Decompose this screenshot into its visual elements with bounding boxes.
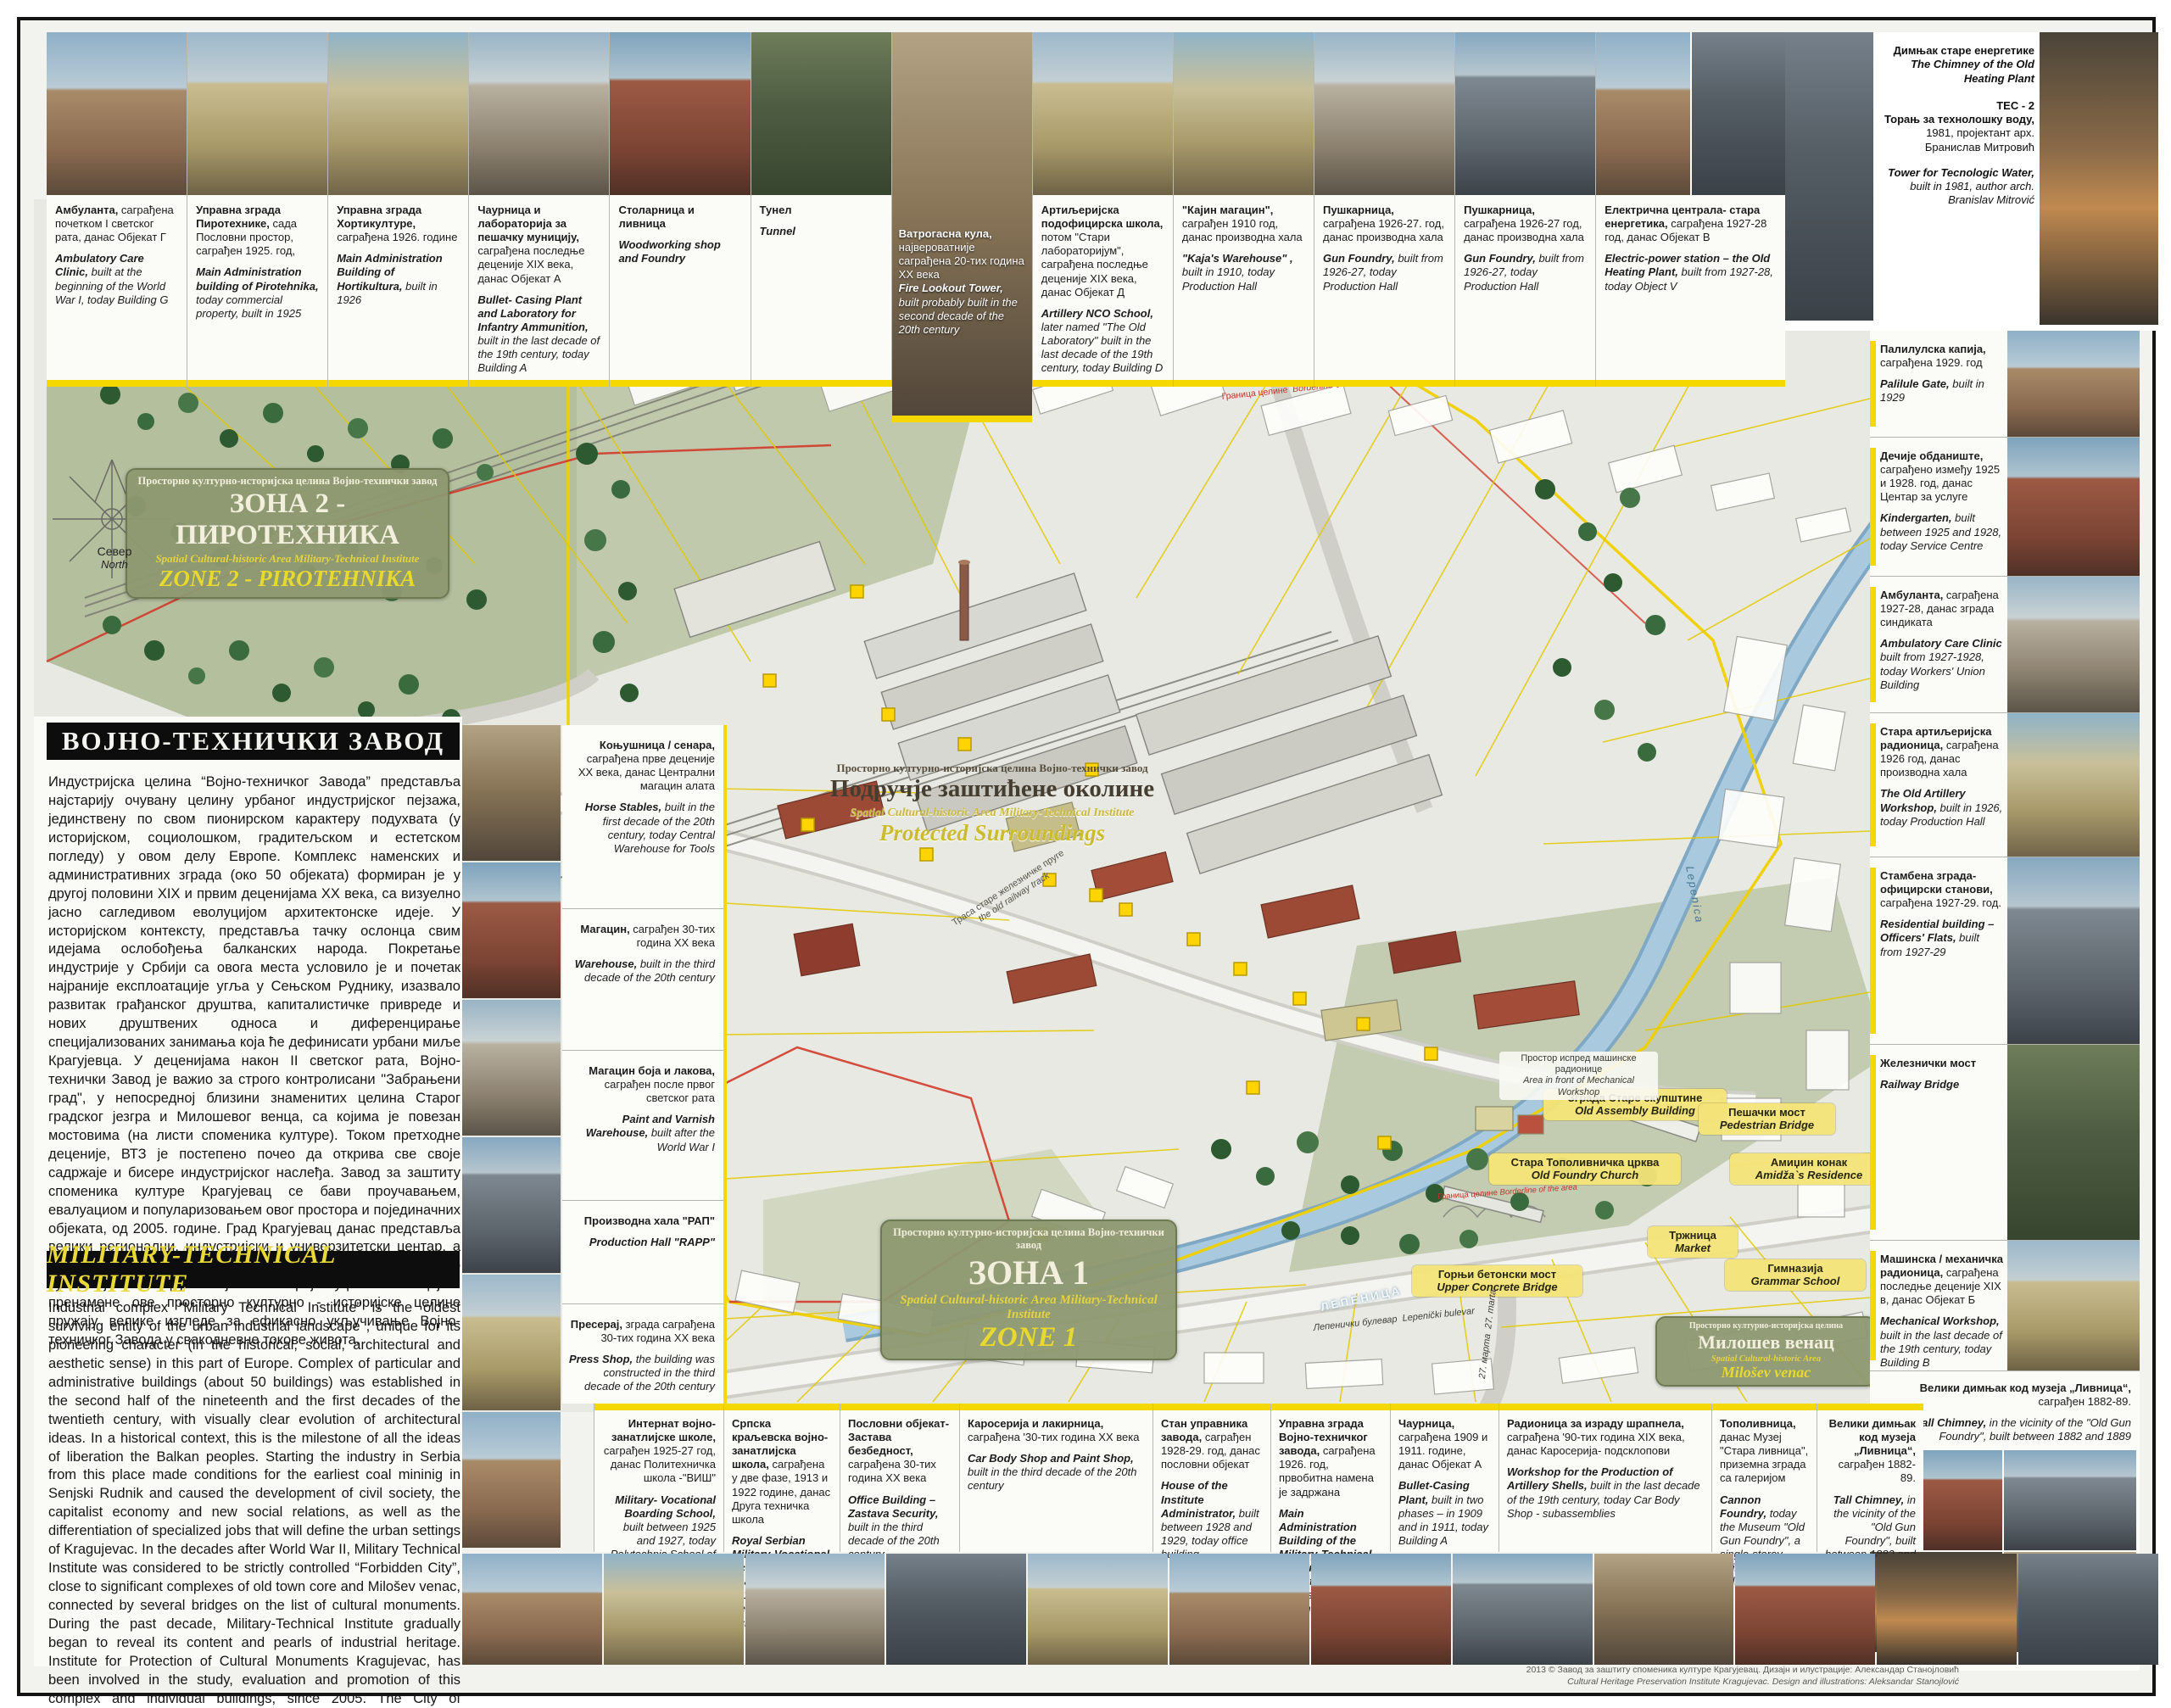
- zone1-title-en: ZONE 1: [889, 1322, 1169, 1354]
- left-photo-strip: [462, 725, 561, 1548]
- intro-paragraph-en: Industrial complex “Military Technical I…: [48, 1299, 460, 1660]
- title-bar-sr: ВОЈНО-ТЕХНИЧКИ ЗАВОД: [47, 723, 460, 760]
- top-photo-caption-strip: Амбуланта, саграђена почетком I светског…: [47, 32, 1785, 387]
- fire-tower-caption: Ватрогасна кула, највероватније саграђен…: [899, 227, 1026, 337]
- yellow-bar: [960, 1404, 1152, 1410]
- bottom-card-boarding-school: Интернат војно-занатлијске школе, саграђ…: [594, 1404, 723, 1552]
- right-card-ambulatory: Амбуланта, саграђена 1927-28, данас згра…: [1870, 576, 2140, 712]
- photo-administrator-house: [1028, 1554, 1168, 1665]
- top-card: Управна зграда Пиротехнике, сада Пословн…: [187, 32, 327, 387]
- top-card: Пушкарница, саграђена 1926-27 год, данас…: [1454, 32, 1595, 387]
- poster: Амбуланта, саграђена почетком I светског…: [0, 0, 2171, 1708]
- bottom-photo-strip: [462, 1554, 2158, 1665]
- photo-palilule-gate: [2007, 331, 2140, 437]
- photo-tall-chimney-2: [1735, 1554, 1875, 1665]
- bottom-card-royal-school: Српска краљевска војно-занатлијска школа…: [723, 1404, 840, 1552]
- photo-ambulatory-clinic: [47, 32, 187, 195]
- photo-second-technical-school: [604, 1554, 744, 1665]
- photo-tunnel: [751, 32, 891, 195]
- photo-horse-stables: [462, 725, 561, 861]
- photo-press-shop: [462, 1275, 561, 1410]
- protected-surroundings-label: Просторно културно-историјска целина Вој…: [806, 762, 1179, 846]
- compass-north-en: North: [59, 558, 170, 571]
- bottom-card-car-body-shop: Каросерија и лакирница, саграђена '30-ти…: [959, 1404, 1152, 1552]
- intro-paragraph-sr: Индустријска целина “Војно-техничког Зав…: [48, 773, 460, 1244]
- photo-museum-machines: [2018, 1554, 2158, 1665]
- left-card-horse-stables: Коњушница / сенара, саграђена прве децен…: [562, 725, 723, 908]
- top-card: Амбуланта, саграђена почетком I светског…: [47, 32, 187, 387]
- zone2-subtitle-sr: Просторно културно-историјска целина Вој…: [134, 475, 441, 488]
- footer-credits: 2013 © Завод за заштиту споменика култур…: [1230, 1665, 1959, 1688]
- photo-gun-foundry-1: [1314, 32, 1454, 195]
- photo-shrapnel-workshop: [1453, 1554, 1593, 1665]
- yellow-bar: [1153, 1404, 1270, 1410]
- bottom-card-main-administration: Управна зграда Војно-техничког завода, с…: [1270, 1404, 1390, 1552]
- yellow-bar: [1870, 1055, 1876, 1230]
- yellow-bar: [1391, 1404, 1498, 1410]
- left-card-rapp-hall: Производна хала "РАП" Production Hall "R…: [562, 1200, 723, 1303]
- zone2-title-sr: ЗОНА 2 - ПИРОТЕХНИКА: [134, 488, 441, 551]
- yellow-bar: [1870, 587, 1876, 702]
- photo-car-body-shop: [886, 1554, 1026, 1665]
- top-card: Управна зграда Хортикултуре, саграђена 1…: [327, 32, 468, 387]
- top-card: Столарница и ливница Woodworking shop an…: [609, 32, 750, 387]
- top-card-power-station: Електрична централа- стара енергетика, с…: [1595, 32, 1785, 387]
- yellow-bar: [1870, 448, 1876, 566]
- photo-kindergarten: [2007, 438, 2140, 576]
- bottom-caption-strip: Интернат војно-занатлијске школе, саграђ…: [594, 1404, 1923, 1552]
- photo-power-station: [1596, 32, 1689, 195]
- photo-old-artillery-workshop: [2007, 713, 2140, 857]
- yellow-bar: [594, 1404, 723, 1410]
- top-card-fire-tower: Ватрогасна кула, највероватније саграђен…: [891, 32, 1032, 387]
- photo-mechanical-workshop: [2007, 1241, 2140, 1370]
- bottom-card-bullet-casing: Чаурница, саграђена 1909 и 1911. године,…: [1390, 1404, 1498, 1552]
- top-card: "Кајин магацин", саграђен 1910 год, дана…: [1173, 32, 1314, 387]
- corner-caption: Димњак старе енергетике The Chimney of t…: [1873, 32, 2040, 331]
- photo-workers-union: [2007, 577, 2140, 712]
- yellow-bar: [1712, 1404, 1817, 1410]
- yellow-bar: [610, 380, 750, 387]
- photo-warehouse: [462, 862, 561, 998]
- photo-zastava-security: [745, 1554, 885, 1665]
- compass-north-sr: Север: [59, 544, 170, 558]
- right-card-railway-bridge: Железнички мост Railway Bridge: [1870, 1044, 2140, 1240]
- top-card: Пушкарница, саграђена 1926-27. год, дана…: [1314, 32, 1454, 387]
- photo-heating-plant-detail: [1785, 32, 1873, 321]
- right-card-officers-flats: Стамбена зграда- официрски станови, сагр…: [1870, 857, 2140, 1044]
- photo-bullet-casing-plant-2: [1311, 1554, 1451, 1665]
- photo-chimneys: [2004, 1450, 2136, 1550]
- yellow-bar: [328, 380, 468, 387]
- zone1-subtitle-sr: Просторно културно-историјска целина Вој…: [889, 1226, 1169, 1252]
- right-card-kindergarten: Дечије обданиште, саграђено између 1925 …: [1870, 437, 2140, 576]
- photo-bullet-casing-plant: [469, 32, 609, 195]
- bottom-card-administrator-house: Стан управника завода, саграђен 1928-29.…: [1152, 1404, 1270, 1552]
- yellow-bar: [1499, 1404, 1711, 1410]
- yellow-bar: [840, 1404, 959, 1410]
- zone2-title-en: ZONE 2 - PIROTEHNIKA: [134, 566, 441, 592]
- yellow-bar: [469, 380, 609, 387]
- photo-woodworking-foundry: [610, 32, 750, 195]
- photo-polytechnic-school: [462, 1554, 602, 1665]
- right-card-old-artillery: Стара артиљеријска радионица, саграђена …: [1870, 712, 2140, 857]
- bottom-card-zastava-security: Пословни објекат- Застава безбедност, са…: [840, 1404, 959, 1552]
- page-title-en: MILITARY-TECHNICAL INSTITUTE: [47, 1241, 460, 1298]
- footer-credit-sr: 2013 © Завод за заштиту споменика култур…: [1230, 1665, 1959, 1677]
- zone2-subtitle-en: Spatial Cultural-historic Area Military-…: [134, 552, 441, 566]
- bottom-card-shrapnel-workshop: Радионица за израду шрапнела, саграђена …: [1498, 1404, 1711, 1552]
- photo-heating-plant-interior: [1692, 32, 1785, 195]
- yellow-bar: [724, 1404, 840, 1410]
- photo-main-administration: [1169, 1554, 1309, 1665]
- map-label-foundry-church: Стара Тополивничка црква Old Foundry Chu…: [1489, 1153, 1681, 1185]
- photo-production-hall-rapp: [462, 1137, 561, 1273]
- yellow-bar: [1455, 380, 1595, 387]
- photo-gun-foundry-2: [1455, 32, 1595, 195]
- bottom-card-tall-chimney: Велики димњак код музеја „Ливница“, сагр…: [1817, 1404, 1923, 1552]
- yellow-bar: [1596, 380, 1785, 387]
- map-label-pedestrian-bridge: Пешачки мост Pedestrian Bridge: [1699, 1103, 1835, 1135]
- zone1-subtitle-en: Spatial Cultural-historic Area Military-…: [889, 1293, 1169, 1322]
- title-bar-en: MILITARY-TECHNICAL INSTITUTE: [47, 1251, 460, 1288]
- photo-railway-bridge: [2007, 1045, 2140, 1240]
- yellow-bar: [1870, 723, 1876, 846]
- zone1-box: Просторно културно-историјска целина Вој…: [880, 1220, 1177, 1360]
- footer-credit-en: Cultural Heritage Preservation Institute…: [1230, 1677, 1959, 1688]
- page-title-sr: ВОЈНО-ТЕХНИЧКИ ЗАВОД: [62, 726, 444, 756]
- left-caption-column: Коњушница / сенара, саграђена прве децен…: [562, 725, 727, 1404]
- left-card-warehouse: Магацин, саграђен 30-тих година XX века …: [562, 908, 723, 1050]
- map-label-mechanical-area: Простор испред машинске радионице Area i…: [1499, 1052, 1658, 1100]
- top-card: Чаурница и лабораторија за пешачку муниц…: [468, 32, 609, 387]
- yellow-bar: [1033, 380, 1173, 387]
- top-card: Тунел Tunnel: [751, 32, 891, 387]
- left-card-paint-warehouse: Магацин боја и лакова, саграђен после пр…: [562, 1050, 723, 1200]
- yellow-bar: [1870, 1251, 1876, 1360]
- map-label-market: Тржница Market: [1648, 1226, 1738, 1258]
- photo-hortikultura-admin: [328, 32, 468, 195]
- yellow-bar: [751, 380, 891, 387]
- photo-kajas-warehouse: [1174, 32, 1314, 195]
- photo-old-foundry-museum: [1594, 1554, 1734, 1665]
- map-label-amidza-residence: Амиџин конак Amidža`s Residence: [1730, 1153, 1888, 1185]
- yellow-bar: [1817, 1404, 1923, 1410]
- yellow-bar: [187, 380, 327, 387]
- yellow-bar: [1314, 380, 1454, 387]
- yellow-bar: [1870, 341, 1876, 427]
- yellow-bar: [1870, 868, 1876, 1034]
- photo-artillery-nco-school: [1033, 32, 1173, 195]
- photo-officers-flats: [2007, 857, 2140, 1044]
- photo-fire-lookout-tower: [892, 32, 1032, 416]
- yellow-bar: [892, 416, 1032, 422]
- top-right-corner-block: Димњак старе енергетике The Chimney of t…: [1785, 32, 2158, 331]
- caption-sr-bold: Амбуланта,: [55, 204, 118, 216]
- zone2-box: Просторно културно-историјска целина Вој…: [126, 468, 449, 599]
- zone1-title-sr: ЗОНА 1: [889, 1253, 1169, 1292]
- bottom-card-cannon-foundry: Тополивница, данас Музеј "Стара ливница"…: [1711, 1404, 1817, 1552]
- right-card-palilule-gate: Палилулска капија, саграђена 1929. год P…: [1870, 331, 2140, 437]
- photo-pirotehnika-admin: [187, 32, 327, 195]
- map-label-grammar-school: Гимназија Grammar School: [1725, 1259, 1866, 1291]
- yellow-bar: [1271, 1404, 1390, 1410]
- photo-boarding-school: [462, 1412, 561, 1548]
- top-card: Артиљеријска подофицирска школа, потом "…: [1032, 32, 1173, 387]
- right-card-mechanical-workshop: Машинска / механичка радионица, саграђен…: [1870, 1240, 2140, 1370]
- yellow-bar: [47, 380, 187, 387]
- photo-tec2-tower: [2040, 32, 2158, 325]
- yellow-bar: [1174, 380, 1314, 387]
- photo-paint-varnish-warehouse: [462, 1000, 561, 1136]
- milosev-venac-box: Просторно културно-историјска целина Мил…: [1655, 1316, 1877, 1387]
- compass-label: Север North: [59, 544, 170, 571]
- photo-foundry-hall-interior: [1877, 1554, 2017, 1665]
